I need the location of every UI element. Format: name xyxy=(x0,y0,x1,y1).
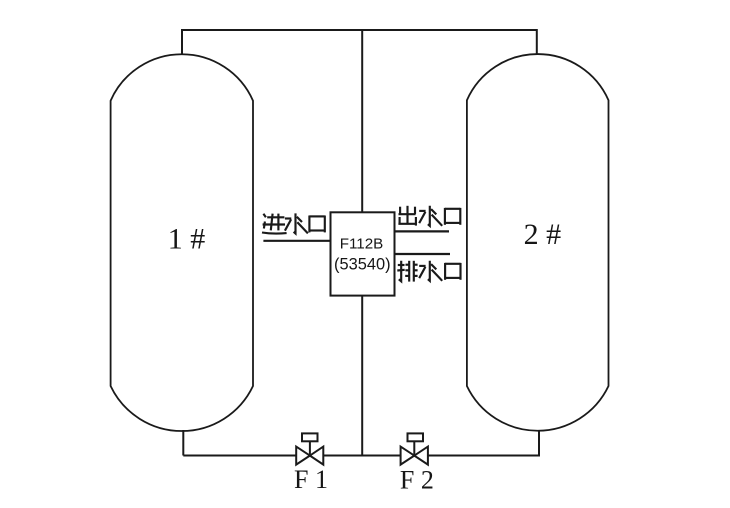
svg-text:(53540): (53540) xyxy=(334,255,391,273)
svg-text:1 #: 1 # xyxy=(168,223,206,256)
svg-text:F 2: F 2 xyxy=(400,466,434,495)
svg-text:F 1: F 1 xyxy=(294,465,328,494)
svg-text:2 #: 2 # xyxy=(524,218,562,251)
svg-text:F112B: F112B xyxy=(340,235,384,252)
